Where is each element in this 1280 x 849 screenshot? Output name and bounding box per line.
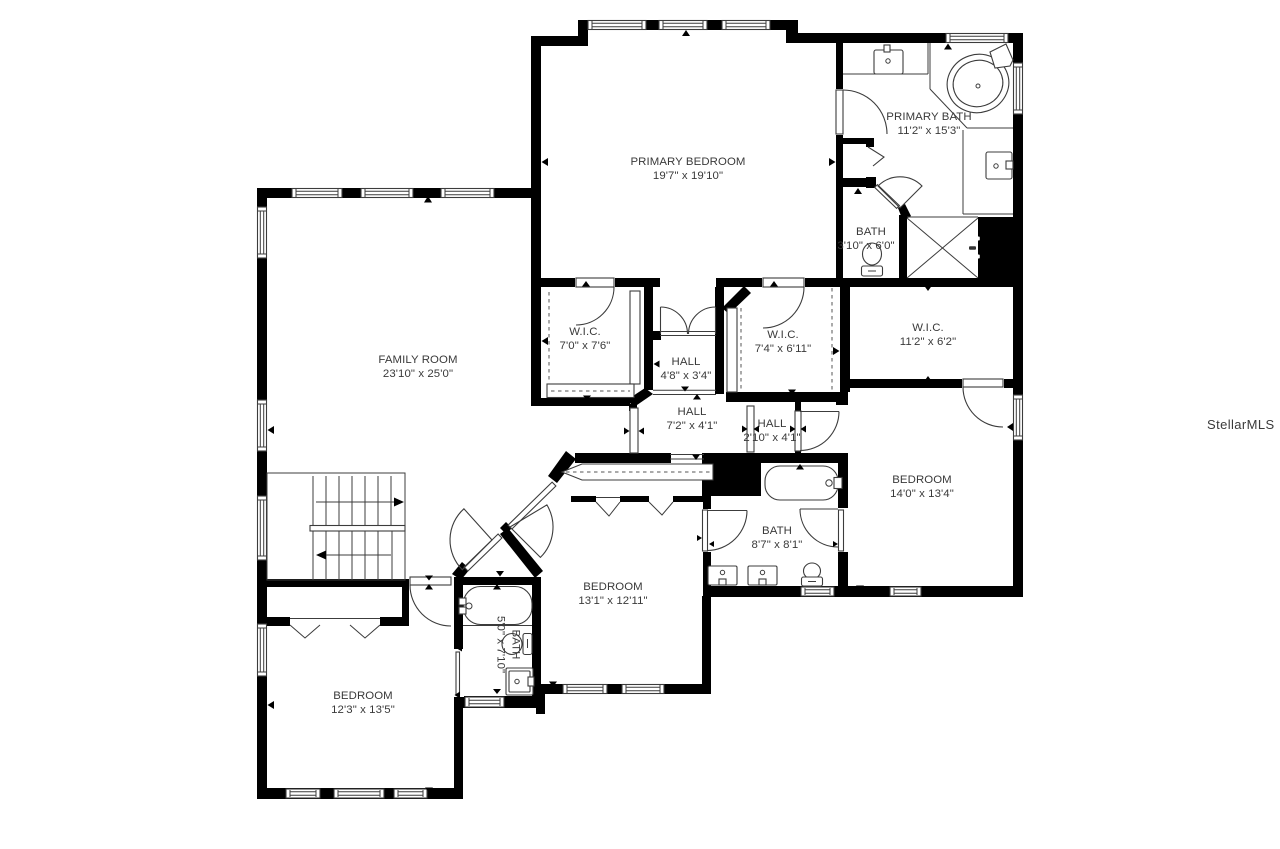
svg-text:BATH: BATH bbox=[510, 630, 522, 660]
svg-text:BEDROOM: BEDROOM bbox=[333, 690, 393, 702]
svg-text:19'7" x 19'10": 19'7" x 19'10" bbox=[653, 170, 723, 182]
svg-text:13'1" x 12'11": 13'1" x 12'11" bbox=[578, 595, 647, 607]
svg-text:PRIMARY BEDROOM: PRIMARY BEDROOM bbox=[630, 156, 745, 168]
svg-text:23'10" x 25'0": 23'10" x 25'0" bbox=[383, 368, 453, 380]
svg-text:HALL: HALL bbox=[678, 406, 707, 418]
svg-text:7'2" x 4'1": 7'2" x 4'1" bbox=[667, 420, 718, 432]
svg-text:7'0" x 7'6": 7'0" x 7'6" bbox=[560, 340, 611, 352]
svg-text:BEDROOM: BEDROOM bbox=[583, 581, 643, 593]
svg-text:5'0" x 7'10": 5'0" x 7'10" bbox=[495, 616, 507, 673]
svg-text:2'10" x 4'1": 2'10" x 4'1" bbox=[743, 432, 800, 444]
svg-text:HALL: HALL bbox=[672, 356, 701, 368]
svg-text:W.I.C.: W.I.C. bbox=[912, 322, 944, 334]
svg-text:PRIMARY BATH: PRIMARY BATH bbox=[886, 111, 971, 123]
svg-text:BATH: BATH bbox=[856, 226, 886, 238]
svg-text:W.I.C.: W.I.C. bbox=[569, 326, 601, 338]
svg-text:11'2" x 6'2": 11'2" x 6'2" bbox=[900, 336, 957, 348]
svg-text:12'3" x 13'5": 12'3" x 13'5" bbox=[331, 704, 395, 716]
svg-text:BEDROOM: BEDROOM bbox=[892, 474, 952, 486]
svg-text:4'8" x 3'4": 4'8" x 3'4" bbox=[661, 370, 712, 382]
svg-text:FAMILY ROOM: FAMILY ROOM bbox=[378, 354, 457, 366]
svg-text:14'0" x 13'4": 14'0" x 13'4" bbox=[890, 488, 954, 500]
svg-text:7'4" x 6'11": 7'4" x 6'11" bbox=[755, 343, 812, 355]
svg-text:HALL: HALL bbox=[758, 418, 787, 430]
svg-text:W.I.C.: W.I.C. bbox=[767, 329, 799, 341]
svg-text:3'10" x 6'0": 3'10" x 6'0" bbox=[837, 240, 894, 252]
svg-text:8'7" x 8'1": 8'7" x 8'1" bbox=[752, 539, 803, 551]
svg-text:StellarMLS: StellarMLS bbox=[1207, 417, 1275, 432]
svg-text:11'2" x 15'3": 11'2" x 15'3" bbox=[898, 125, 961, 137]
svg-text:BATH: BATH bbox=[762, 525, 792, 537]
